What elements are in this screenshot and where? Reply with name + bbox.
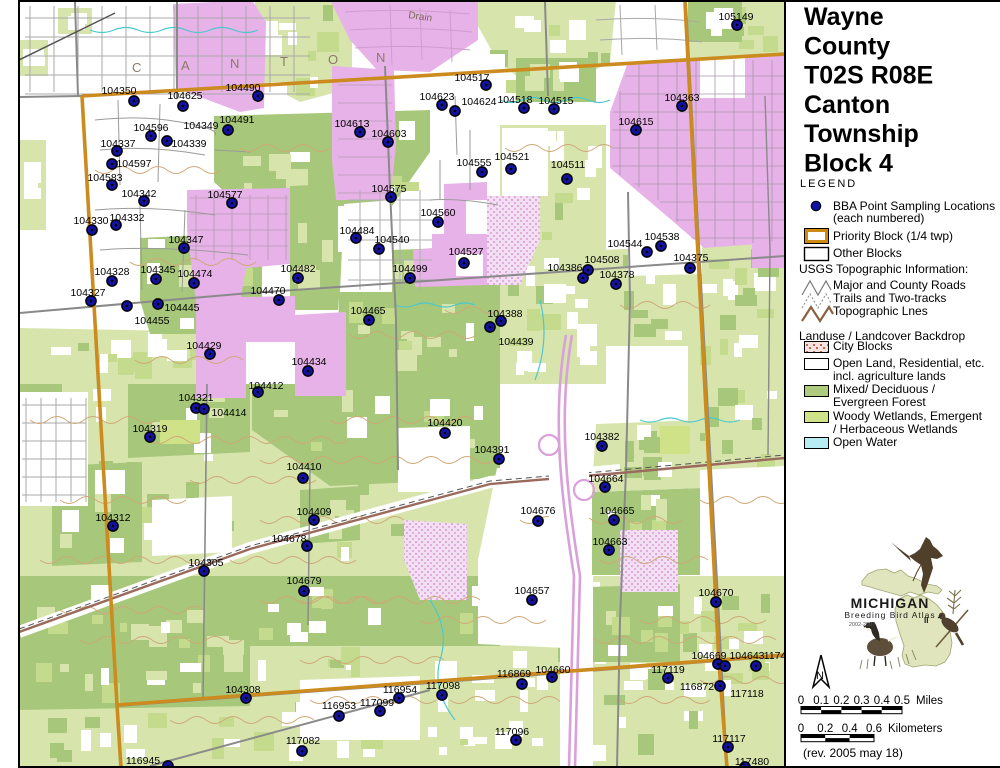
svg-text:0.4: 0.4 [842,723,859,735]
svg-text:A: A [181,58,190,73]
svg-text:104540: 104540 [374,234,409,246]
svg-text:Kilometers: Kilometers [888,723,943,735]
svg-text:104664: 104664 [588,473,623,485]
svg-text:104350: 104350 [101,85,136,97]
svg-text:105149: 105149 [718,11,753,23]
svg-text:0.2: 0.2 [817,723,833,735]
svg-text:104521: 104521 [494,151,529,163]
svg-text:104615: 104615 [618,116,653,128]
svg-text:117118: 117118 [730,688,764,700]
svg-text:104518: 104518 [497,94,532,106]
svg-text:N: N [816,670,824,682]
svg-text:104482: 104482 [280,263,315,275]
svg-text:104327: 104327 [70,287,105,299]
svg-text:N: N [230,56,239,71]
svg-text:Woody Wetlands, Emergent: Woody Wetlands, Emergent [833,409,983,423]
svg-text:117117: 117117 [712,733,746,745]
svg-text:104596: 104596 [133,122,168,134]
svg-text:City Blocks: City Blocks [833,339,892,353]
svg-text:104312: 104312 [95,512,130,524]
svg-text:104511: 104511 [551,159,585,171]
svg-text:104328: 104328 [94,266,129,278]
svg-text:104330: 104330 [73,215,108,227]
svg-text:104412: 104412 [248,380,283,392]
svg-text:2002-2007: 2002-2007 [849,622,875,628]
svg-text:104382: 104382 [584,431,619,443]
svg-text:104665: 104665 [599,505,634,517]
svg-text:104378: 104378 [599,269,634,281]
svg-text:104308: 104308 [225,684,260,696]
svg-text:104603: 104603 [371,128,406,140]
svg-text:104583: 104583 [87,172,122,184]
svg-text:Wayne: Wayne [804,3,884,31]
svg-text:County: County [804,32,890,60]
svg-text:117119: 117119 [651,664,685,676]
svg-text:(each numbered): (each numbered) [833,211,924,225]
svg-text:Block 4: Block 4 [804,150,893,178]
svg-text:104613: 104613 [334,118,369,130]
svg-text:104410: 104410 [286,461,321,473]
svg-text:0: 0 [798,695,804,707]
svg-text:Township: Township [804,120,919,148]
svg-text:104560: 104560 [420,207,455,219]
svg-text:104669: 104669 [691,650,726,662]
svg-text:0: 0 [798,723,804,735]
svg-text:C: C [132,60,141,75]
svg-text:104414: 104414 [211,407,246,419]
svg-text:104429: 104429 [186,340,221,352]
svg-text:104386: 104386 [547,262,582,274]
svg-text:104474: 104474 [177,268,212,280]
svg-text:0.6: 0.6 [866,723,882,735]
svg-text:/ Herbaceous Wetlands: / Herbaceous Wetlands [833,422,958,436]
svg-text:104538: 104538 [644,231,679,243]
svg-text:104375: 104375 [673,252,708,264]
svg-text:104660: 104660 [535,664,570,676]
svg-text:104339: 104339 [171,138,206,150]
svg-text:104337: 104337 [100,138,135,150]
svg-text:104470: 104470 [250,285,285,297]
svg-text:116872: 116872 [680,681,714,693]
svg-text:104332: 104332 [109,212,144,224]
svg-text:Priority Block (1/4 twp): Priority Block (1/4 twp) [833,229,953,243]
svg-text:0.2: 0.2 [833,695,849,707]
svg-text:0.1: 0.1 [813,695,829,707]
svg-text:104388: 104388 [487,308,522,320]
svg-text:MICHIGAN: MICHIGAN [851,595,930,611]
svg-text:104499: 104499 [392,263,427,275]
svg-text:104465: 104465 [350,305,385,317]
svg-text:Miles: Miles [916,695,943,707]
svg-text:104409: 104409 [296,506,331,518]
svg-text:104319: 104319 [132,423,167,435]
svg-text:104575: 104575 [371,183,406,195]
svg-text:LEGEND: LEGEND [800,178,857,190]
svg-text:Mixed/ Deciduous /: Mixed/ Deciduous / [833,382,936,396]
svg-text:104670: 104670 [698,587,733,599]
svg-text:104347: 104347 [168,234,203,246]
svg-text:117096: 117096 [495,726,529,738]
svg-text:104445: 104445 [164,302,199,314]
svg-text:Open Water: Open Water [833,435,897,449]
svg-text:104420: 104420 [427,417,462,429]
svg-text:104342: 104342 [121,188,156,200]
svg-text:104439: 104439 [498,336,533,348]
svg-text:117099: 117099 [360,697,394,709]
svg-text:Open Land, Residential, etc.: Open Land, Residential, etc. [833,356,984,370]
svg-text:104544: 104544 [607,238,642,250]
svg-text:116945: 116945 [126,755,160,767]
svg-text:0.4: 0.4 [874,695,891,707]
svg-text:104508: 104508 [584,254,619,266]
svg-text:104363: 104363 [664,92,699,104]
svg-text:Canton: Canton [804,91,890,119]
svg-text:104349: 104349 [183,120,218,132]
svg-text:Other Blocks: Other Blocks [833,246,902,260]
svg-text:11744: 11744 [764,650,793,662]
svg-text:104597: 104597 [116,158,151,170]
svg-text:(rev. 2005 may 18): (rev. 2005 may 18) [803,746,903,760]
svg-text:104517: 104517 [454,72,489,84]
svg-text:T: T [280,54,288,69]
svg-text:N: N [376,50,385,65]
svg-text:Trails and Two-tracks: Trails and Two-tracks [833,291,946,305]
svg-text:117082: 117082 [286,735,320,747]
svg-text:104676: 104676 [520,505,555,517]
svg-text:0.3: 0.3 [854,695,870,707]
svg-text:104678: 104678 [271,533,306,545]
svg-text:104490: 104490 [225,82,260,94]
svg-text:USGS Topographic Information:: USGS Topographic Information: [799,262,968,276]
svg-text:104455: 104455 [134,315,169,327]
svg-text:116953: 116953 [322,700,356,712]
svg-text:104577: 104577 [207,189,242,201]
svg-text:104484: 104484 [339,225,374,237]
svg-text:O: O [328,52,338,67]
svg-text:104555: 104555 [456,157,491,169]
svg-text:104623: 104623 [419,91,454,103]
svg-text:104391: 104391 [474,444,509,456]
svg-text:104321: 104321 [178,392,213,404]
svg-text:104663: 104663 [592,536,627,548]
svg-text:104657: 104657 [514,585,549,597]
svg-text:incl. agriculture lands: incl. agriculture lands [833,369,946,383]
svg-text:104643: 104643 [729,650,764,662]
svg-text:116954: 116954 [383,684,417,696]
svg-text:117098: 117098 [426,680,460,692]
svg-text:104679: 104679 [286,575,321,587]
svg-text:0.5: 0.5 [894,695,910,707]
svg-text:104305: 104305 [188,557,223,569]
svg-text:Breeding Bird Atlas: Breeding Bird Atlas [844,610,935,620]
svg-text:T02S R08E: T02S R08E [804,62,933,90]
svg-text:104345: 104345 [140,264,175,276]
svg-text:104527: 104527 [448,246,483,258]
svg-text:104625: 104625 [167,90,202,102]
svg-text:104491: 104491 [219,114,254,126]
svg-text:Evergreen Forest: Evergreen Forest [833,395,926,409]
svg-text:116869: 116869 [497,668,531,680]
svg-text:II: II [924,616,928,625]
svg-text:Topographic Lnes: Topographic Lnes [833,304,928,318]
svg-text:104515: 104515 [538,95,573,107]
svg-text:Major and County Roads: Major and County Roads [833,278,966,292]
svg-text:104624: 104624 [461,96,496,108]
svg-text:104434: 104434 [291,356,326,368]
